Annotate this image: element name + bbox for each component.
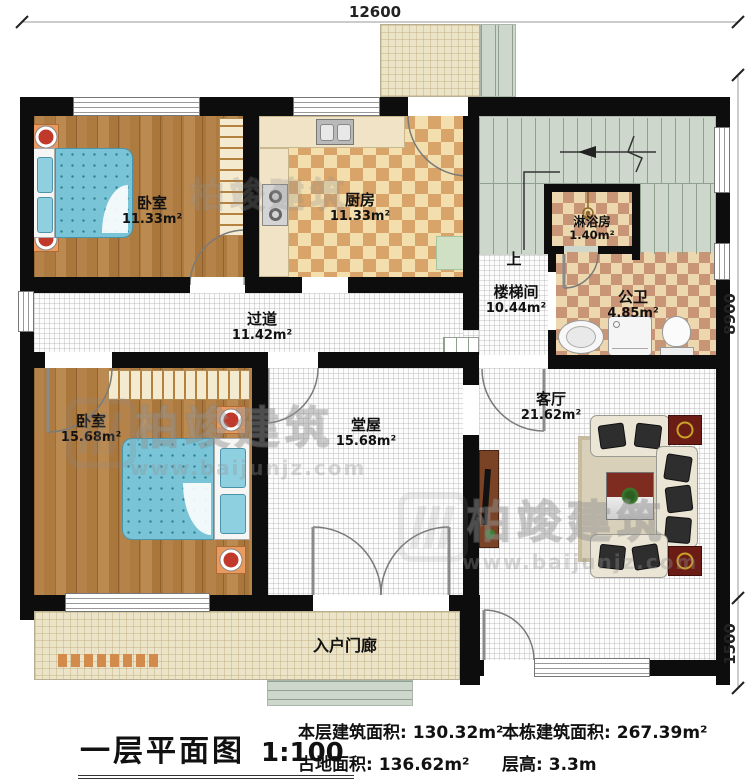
stat-floor-area: 本层建筑面积: 130.32m² [298,718,504,743]
dim-right-porch: 1500 [721,614,739,674]
lamp-icon [221,550,242,571]
toilet-bowl [662,316,691,347]
wall-segment [252,352,268,595]
wall-segment [34,277,190,293]
living-label: 客厅 21.62m² [521,390,581,424]
cushion [634,423,663,450]
window [534,658,650,677]
hall-label: 堂屋 15.68m² [336,416,396,450]
wall-segment [548,355,716,369]
porch-tile-dashes [58,654,162,667]
window [714,127,730,193]
tv-icon [481,469,491,525]
side-table [668,415,702,445]
pillow [37,197,53,233]
tv-cabinet [479,450,499,548]
wall-segment [20,595,65,611]
wall-segment [548,252,556,272]
kitchen-sink [316,119,354,145]
burner [269,190,282,203]
sink-basin [337,124,351,141]
shower-label: 淋浴房 1.40m² [569,214,614,243]
bed1-headboard [33,148,55,238]
toilet [660,316,694,358]
lamp-icon [36,127,57,148]
coffee-table [606,472,654,520]
lamp-icon [221,410,242,431]
wall-segment [112,352,252,368]
kitchen-mat [436,236,464,270]
wall-segment [348,277,463,293]
plant-icon [621,487,639,505]
nightstand [216,546,246,574]
window [65,593,210,612]
porch-label: 入户门廊 [313,636,377,655]
side-table [668,546,702,576]
bathroom-label: 公卫 4.85m² [607,288,658,322]
wall-segment [245,277,302,293]
tray-line [612,348,648,349]
pillow [220,448,246,488]
wall-segment [544,184,552,254]
cushion [663,453,693,483]
burner [269,208,282,221]
stair-treads-left [479,184,544,254]
plant-icon [485,529,495,539]
wall-segment [463,116,479,330]
stair-up-label: 上 [506,250,521,268]
nightstand [216,406,246,434]
wall-segment [650,660,730,676]
medallion-icon [677,422,694,439]
porch-steps [267,680,413,706]
wall-segment [20,352,45,368]
bed2-headboard [214,438,250,540]
knob-icon [613,321,620,328]
bedroom2-wardrobe [108,370,250,400]
wall-segment [380,97,408,116]
nightstand [33,124,59,150]
bedroom1-label: 卧室 11.33m² [122,194,182,228]
patio-steps [480,24,516,97]
stair-treads-upper [479,118,716,184]
bed2-mattress [122,438,214,540]
dim-right-main: 8900 [721,284,739,344]
window [73,97,200,116]
stairwell-label: 楼梯间 10.44m² [486,283,546,317]
wall-segment [468,97,730,116]
wall-segment [318,352,463,368]
stat-building-area: 本栋建筑面积: 267.39m² [502,718,708,743]
wall-segment [20,332,34,620]
wall-segment [463,352,479,385]
hall-floor [268,368,463,595]
stove [262,184,288,226]
wall-segment [716,97,730,127]
sink-basin [320,124,334,141]
wall-segment [200,97,293,116]
pillow [220,494,246,534]
cushion [665,485,694,514]
cushion [631,543,660,571]
wall-segment [243,116,259,277]
bedroom2-label: 卧室 15.68m² [61,412,121,446]
stair-treads-right [640,184,716,254]
stat-floor-height: 层高: 3.3m [502,750,597,775]
cushion [664,516,692,544]
floor-plan: 12600 8900 1500 卧室 11.33m² 厨房 11.33m² 淋浴… [0,0,750,780]
plan-title: 一层平面图 [80,726,245,770]
sink-bowl [566,326,596,348]
wall-segment [463,435,479,595]
wall-segment [460,660,484,676]
bathroom-sink [558,320,604,354]
wall-segment [544,184,640,192]
window [293,97,380,116]
cushion [597,422,626,449]
patio-floor [380,24,480,97]
wall-segment [544,246,564,254]
porch-floor [34,611,460,680]
window [714,243,730,280]
corridor-label: 过道 11.42m² [232,310,292,344]
shower-tray [608,316,652,356]
wall-segment [20,97,34,291]
wall-segment [598,246,640,254]
sofa-right [656,446,698,548]
cushion [598,544,626,571]
bedroom1-wardrobe [219,118,245,236]
stat-footprint-area: 占地面积: 136.62m² [298,750,470,775]
sofa-bottom [590,534,668,578]
window [18,291,34,332]
wall-segment [548,330,556,355]
blanket-fold [183,483,211,535]
medallion-icon [677,553,694,570]
pillow [37,157,53,193]
wall-segment [210,595,313,611]
wall-segment [716,193,730,243]
dim-top-width: 12600 [338,3,412,21]
kitchen-label: 厨房 11.33m² [330,191,390,225]
